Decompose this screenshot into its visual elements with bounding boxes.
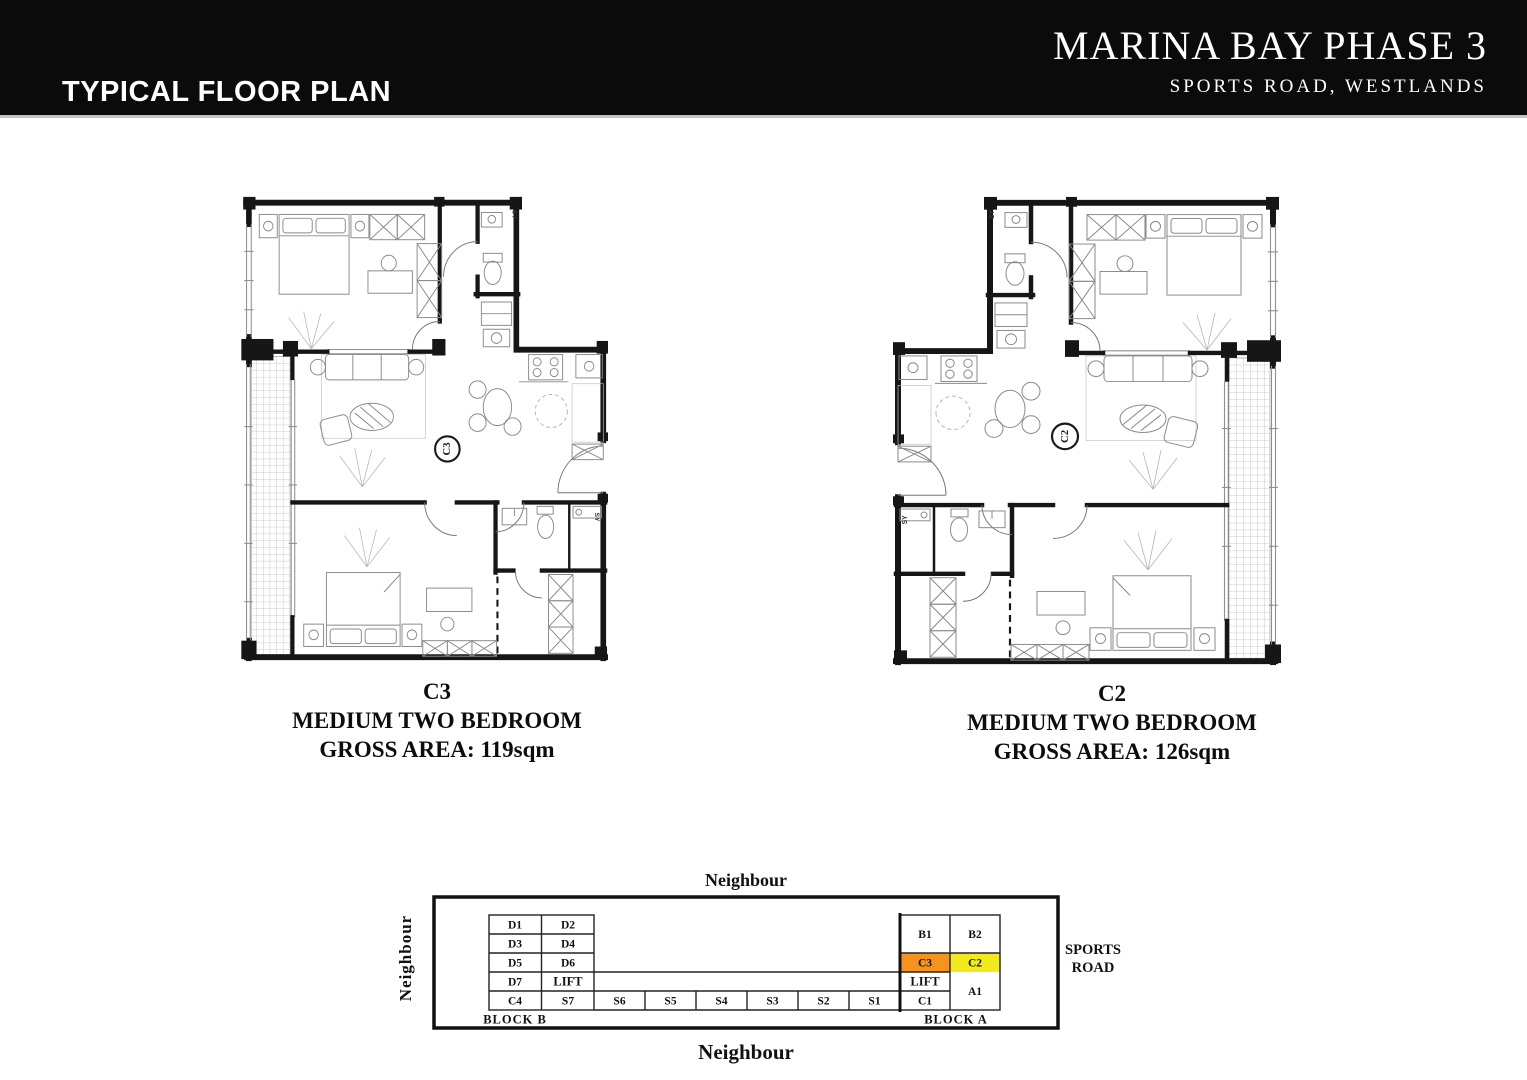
shaft-label: SY bbox=[902, 515, 909, 525]
keyplan-cell-label: D1 bbox=[508, 920, 522, 932]
project-address: SPORTS ROAD, WESTLANDS bbox=[1170, 76, 1487, 98]
keyplan-strip-grid bbox=[594, 972, 900, 1010]
keyplan-cell-label: S2 bbox=[817, 996, 829, 1008]
unit-c2-area: GROSS AREA: 126sqm bbox=[912, 737, 1312, 766]
unit-tag-label: C2 bbox=[1059, 430, 1071, 443]
unit-c3-area: GROSS AREA: 119sqm bbox=[237, 735, 637, 764]
shaft-label: SY bbox=[593, 513, 600, 523]
block-b-label: BLOCK B bbox=[483, 1013, 547, 1027]
keyplan-cell-label: D3 bbox=[508, 939, 522, 951]
keyplan-cell-label: LIFT bbox=[910, 975, 940, 989]
unit-c2-type: MEDIUM TWO BEDROOM bbox=[912, 708, 1312, 737]
keyplan-cell-label: B1 bbox=[918, 929, 932, 941]
keyplan-cell-label: S5 bbox=[664, 996, 676, 1008]
keyplan-cell-label: S1 bbox=[868, 996, 880, 1008]
unit-tag-label: C3 bbox=[442, 442, 453, 455]
keyplan-cell-label: B2 bbox=[968, 929, 982, 941]
unit-c2-code: C2 bbox=[912, 679, 1312, 708]
floorplan-c3: C3 SY SY bbox=[230, 193, 608, 665]
floor-plan-sheet: TYPICAL FLOOR PLAN MARINA BAY PHASE 3 SP… bbox=[0, 0, 1527, 1080]
keyplan-cell-label: C4 bbox=[508, 996, 522, 1008]
keyplan-cell-label: A1 bbox=[968, 986, 982, 998]
unit-c3-code: C3 bbox=[237, 677, 637, 706]
keyplan-cell-label: C1 bbox=[918, 996, 932, 1008]
floorplan-c2: C2 SY SY bbox=[893, 193, 1293, 669]
project-name: MARINA BAY PHASE 3 bbox=[1053, 22, 1487, 69]
keyplan-blockb-grid bbox=[489, 915, 594, 1010]
header-bar: TYPICAL FLOOR PLAN MARINA BAY PHASE 3 SP… bbox=[0, 0, 1527, 118]
unit-c2-caption: C2 MEDIUM TWO BEDROOM GROSS AREA: 126sqm bbox=[912, 679, 1312, 766]
sports-road-label-line2: ROAD bbox=[1072, 960, 1115, 976]
keyplan-cell-label: S4 bbox=[715, 996, 727, 1008]
keyplan-cell-label-c2: C2 bbox=[968, 958, 982, 970]
keyplan-cell-label: D2 bbox=[561, 920, 575, 932]
keyplan-cell-label: D7 bbox=[508, 977, 522, 989]
keyplan-cell-label: S3 bbox=[766, 996, 778, 1008]
key-plan: D1 D2 D3 D4 D5 D6 D7 LIFT C4 S7 S6 S5 S4… bbox=[380, 862, 1140, 1080]
keyplan-cell-label: D4 bbox=[561, 939, 575, 951]
keyplan-cell-label: D5 bbox=[508, 958, 522, 970]
keyplan-cell-label: S6 bbox=[613, 996, 625, 1008]
page-title: TYPICAL FLOOR PLAN bbox=[62, 76, 391, 109]
unit-c3-type: MEDIUM TWO BEDROOM bbox=[237, 706, 637, 735]
keyplan-cell-label-c3: C3 bbox=[918, 958, 932, 970]
shaft-label: SY bbox=[511, 210, 518, 220]
keyplan-cell-label: S7 bbox=[562, 996, 574, 1008]
block-a-label: BLOCK A bbox=[924, 1013, 988, 1027]
neighbour-label-top: Neighbour bbox=[705, 870, 787, 890]
shaft-label: SY bbox=[989, 210, 996, 220]
keyplan-cell-label: LIFT bbox=[553, 975, 583, 989]
neighbour-label-left: Neighbour bbox=[396, 915, 415, 1001]
keyplan-cell-label: D6 bbox=[561, 958, 575, 970]
neighbour-label-bottom: Neighbour bbox=[698, 1040, 794, 1064]
unit-c3-caption: C3 MEDIUM TWO BEDROOM GROSS AREA: 119sqm bbox=[237, 677, 637, 764]
sports-road-label-line1: SPORTS bbox=[1065, 942, 1121, 958]
